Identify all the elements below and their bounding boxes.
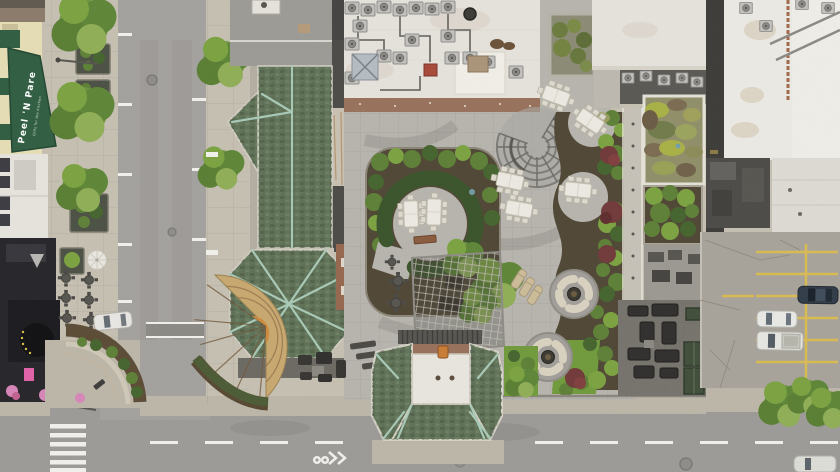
aerial-photo: Peel 'N Pare Gifts for the Kitchen xyxy=(0,0,840,472)
photo-grain xyxy=(0,0,840,472)
aerial-photo-canvas: Peel 'N Pare Gifts for the Kitchen xyxy=(0,0,840,472)
